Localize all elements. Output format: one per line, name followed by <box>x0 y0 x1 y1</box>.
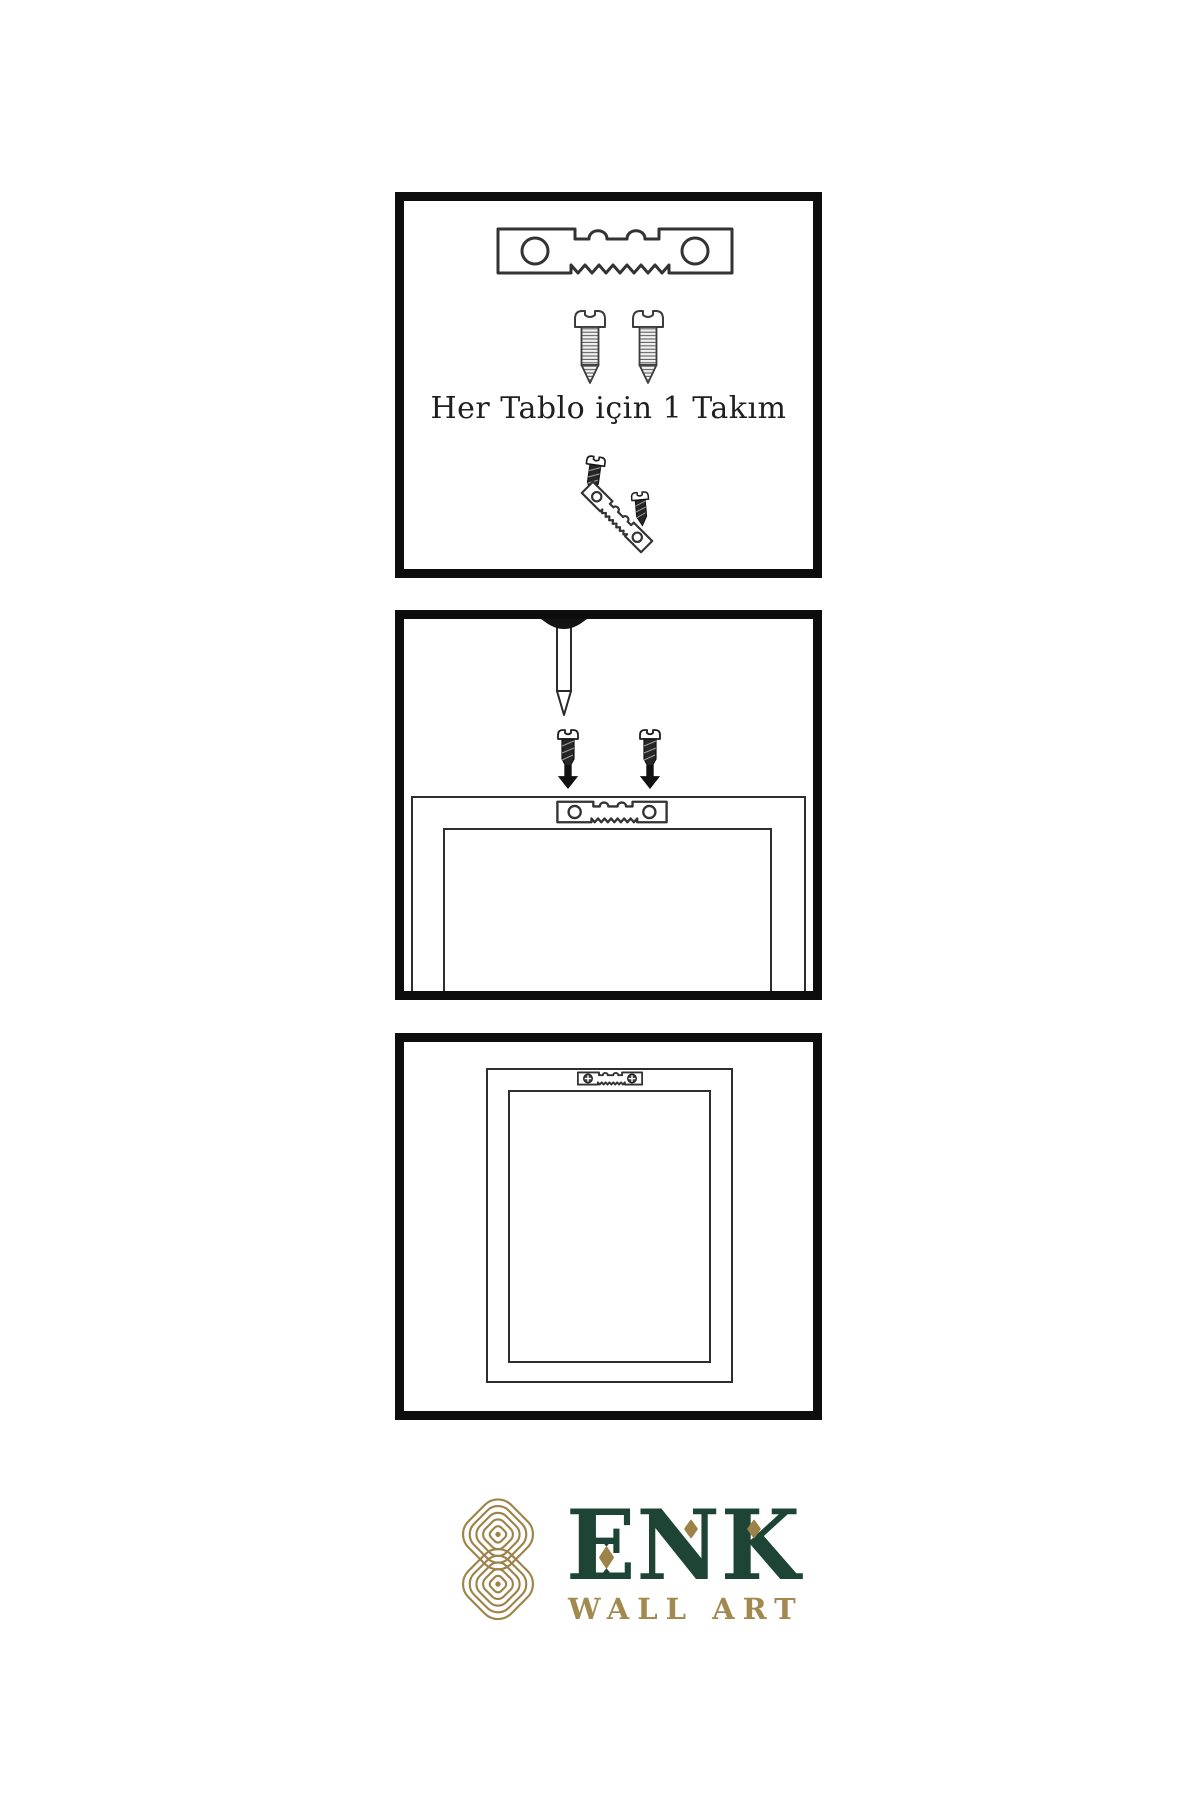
down-arrow-icon <box>557 765 579 789</box>
brand-subtitle: WALL ART <box>568 1592 804 1626</box>
kit-caption: Her Tablo için 1 Takım <box>404 391 813 426</box>
screw-icon <box>630 307 666 387</box>
frame-back-inner-edge <box>443 828 772 1000</box>
frame-back-inner-edge <box>508 1090 711 1363</box>
sawtooth-hanger-icon <box>495 224 735 278</box>
screw-icon <box>629 488 652 530</box>
nail-icon <box>540 619 588 719</box>
sawtooth-hanger-icon <box>556 799 668 825</box>
brand-knot-emblem-icon <box>434 1490 562 1632</box>
screw-icon <box>572 307 608 387</box>
down-arrow-icon <box>639 765 661 789</box>
panel-wall-mounting <box>395 610 822 1000</box>
brand-name: ENK <box>566 1498 801 1594</box>
panel-hung-frame <box>395 1033 822 1420</box>
mounted-sawtooth-hanger-icon <box>577 1069 643 1088</box>
panel-hardware-kit: Her Tablo için 1 Takım <box>395 192 822 578</box>
